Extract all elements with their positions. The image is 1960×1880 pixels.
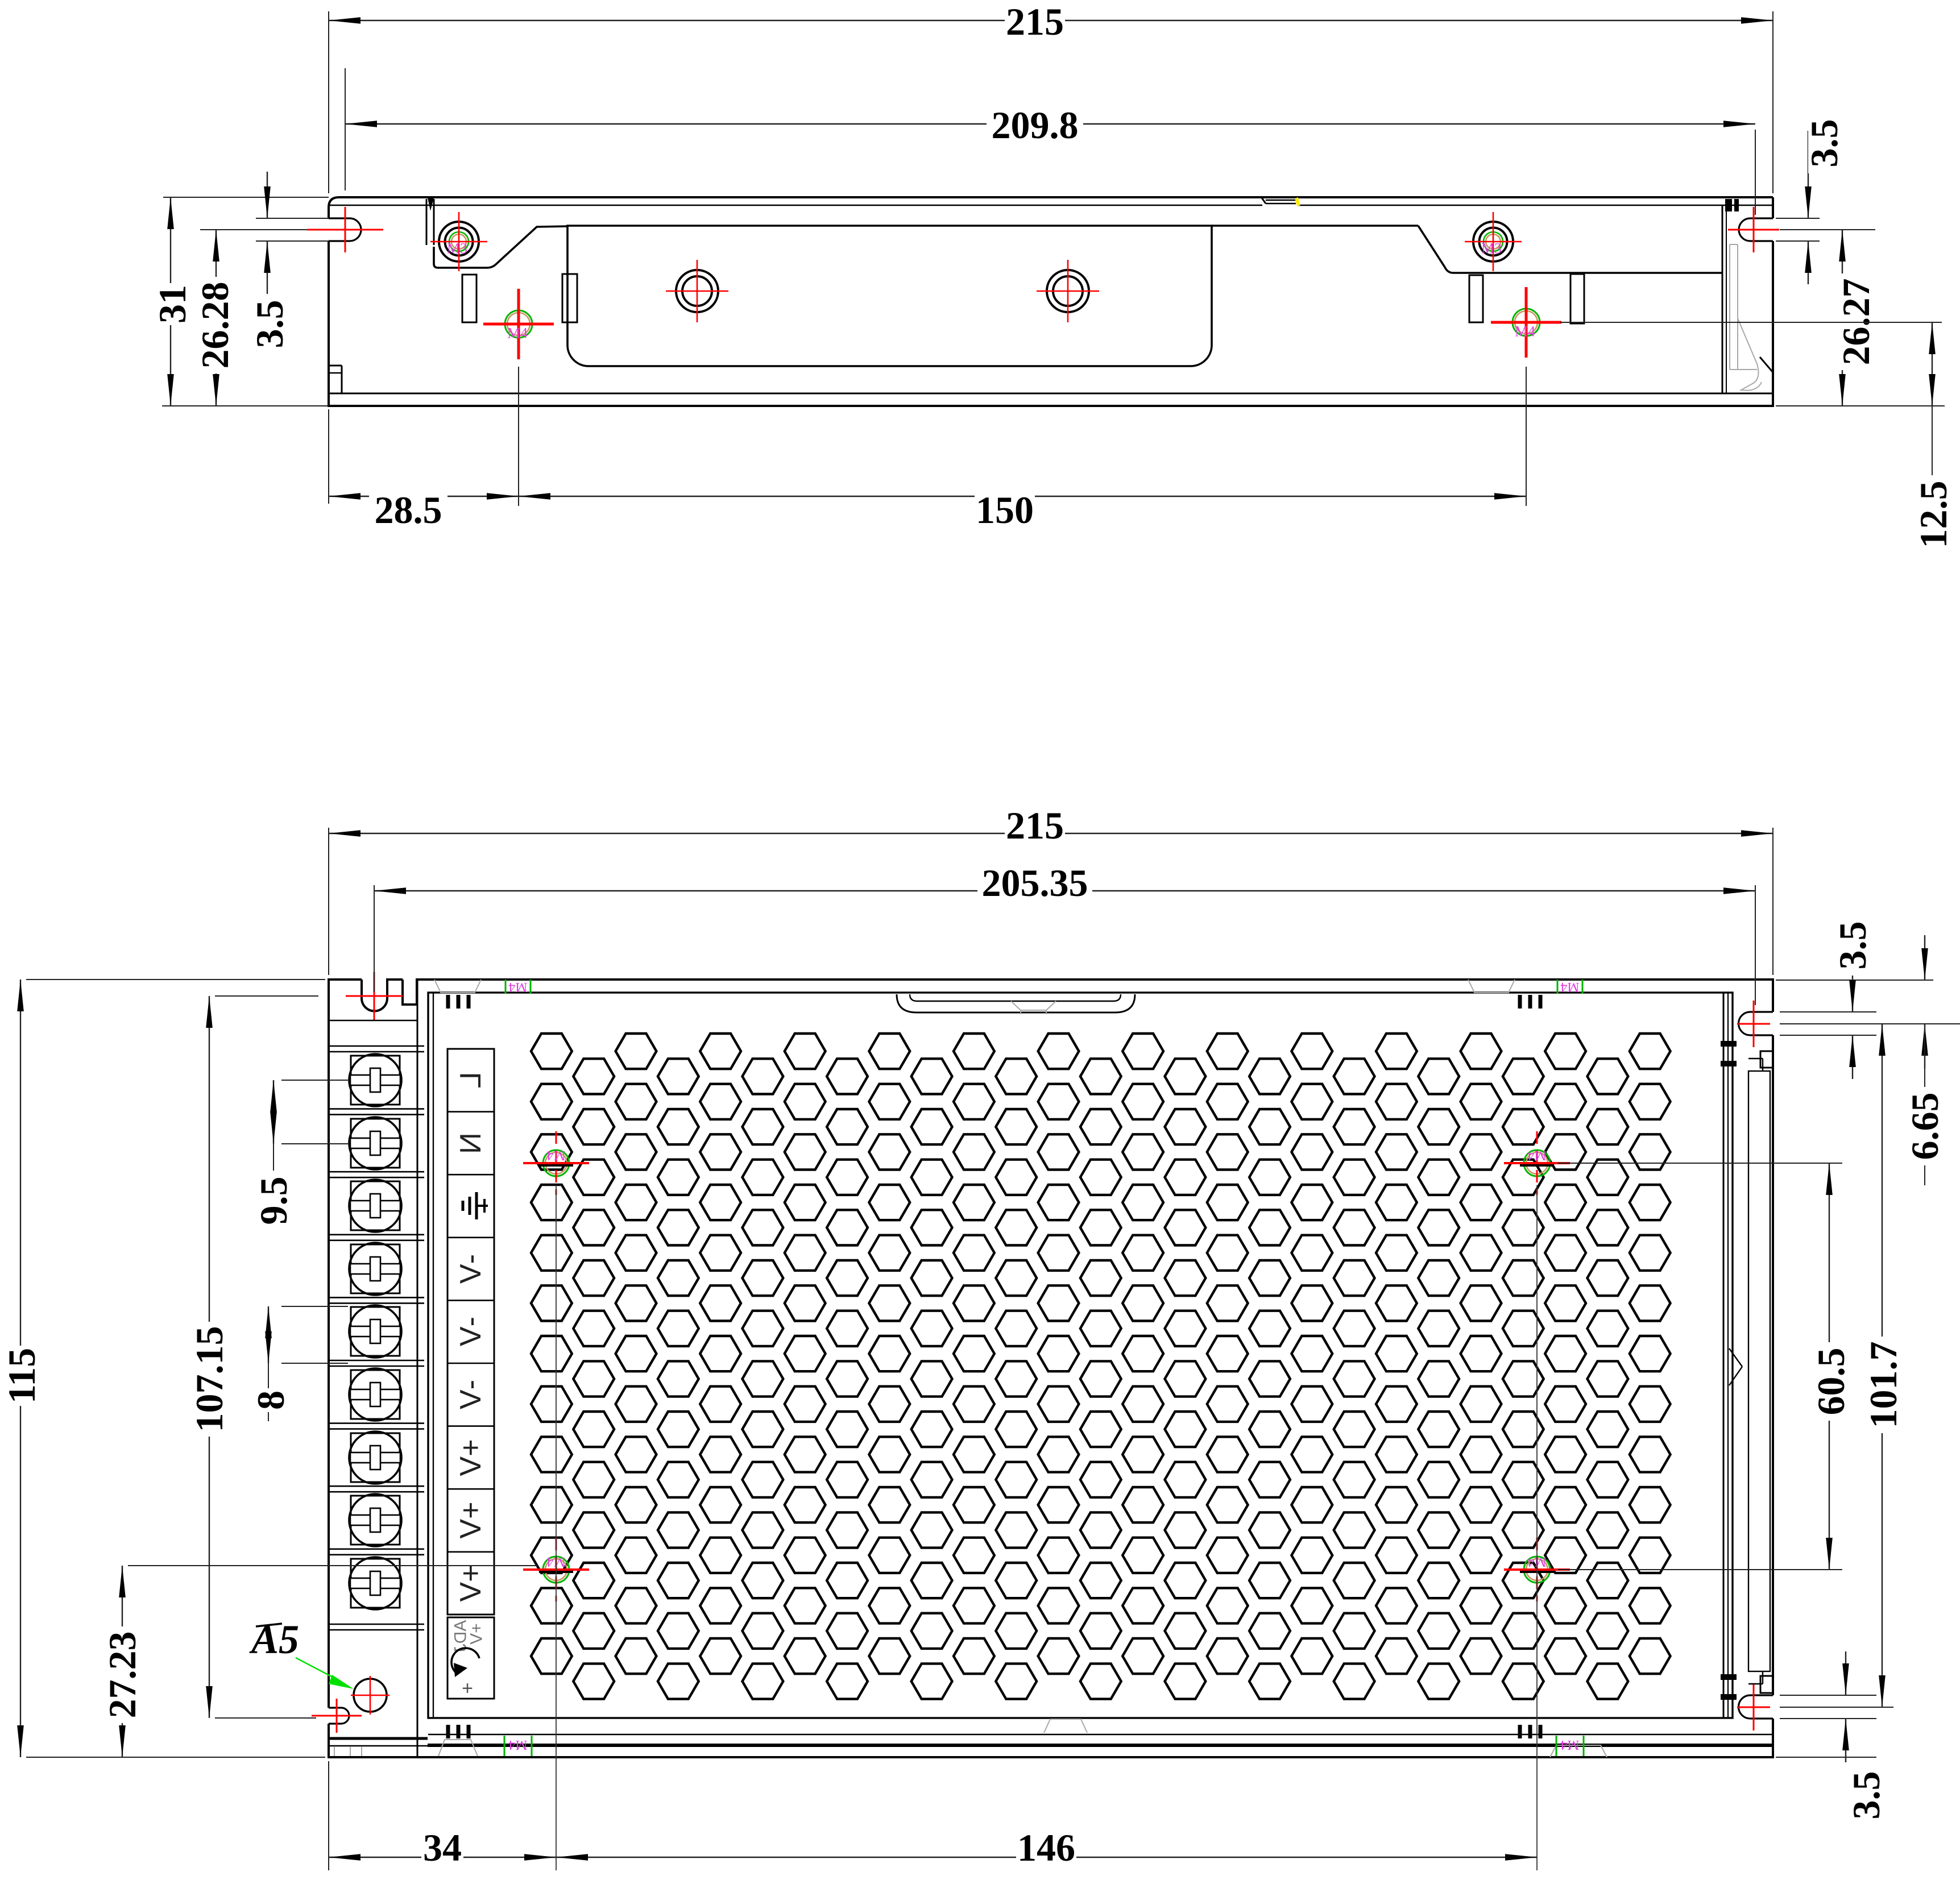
svg-text:101.7: 101.7 — [1862, 1342, 1905, 1429]
svg-text:+V: +V — [454, 1439, 487, 1476]
svg-text:27.23: 27.23 — [101, 1632, 144, 1719]
svg-text:8: 8 — [249, 1391, 292, 1410]
svg-text:3.5: 3.5 — [1831, 922, 1874, 970]
svg-text:28.5: 28.5 — [375, 488, 442, 532]
svg-text:209.8: 209.8 — [992, 103, 1079, 147]
svg-text:-V: -V — [454, 1317, 487, 1346]
svg-text:-V: -V — [454, 1254, 487, 1284]
svg-text:3.5: 3.5 — [1845, 1771, 1888, 1820]
svg-text:+V: +V — [454, 1564, 487, 1601]
svg-text:146: 146 — [1017, 1826, 1075, 1869]
svg-text:-V: -V — [454, 1380, 487, 1409]
svg-text:M4: M4 — [1560, 1737, 1579, 1752]
svg-text:M4: M4 — [1515, 323, 1535, 340]
svg-text:M4: M4 — [1527, 1148, 1546, 1163]
svg-text:6.65: 6.65 — [1903, 1093, 1946, 1160]
svg-text:+V: +V — [454, 1501, 487, 1538]
svg-text:3.5: 3.5 — [1802, 119, 1846, 168]
svg-text:M4: M4 — [1560, 980, 1579, 994]
svg-text:M3: M3 — [1481, 240, 1502, 257]
svg-text:M4: M4 — [507, 325, 528, 342]
svg-text:31: 31 — [151, 285, 194, 323]
svg-text:M3: M3 — [447, 240, 467, 257]
svg-text:34: 34 — [423, 1826, 462, 1869]
svg-text:M4: M4 — [508, 1737, 527, 1752]
svg-text:L: L — [454, 1072, 487, 1089]
svg-text:107.15: 107.15 — [188, 1326, 231, 1433]
svg-text:26.28: 26.28 — [193, 282, 237, 369]
svg-text:N: N — [454, 1132, 487, 1154]
svg-text:150: 150 — [976, 488, 1034, 532]
svg-text:60.5: 60.5 — [1809, 1348, 1853, 1416]
svg-text:215: 215 — [1006, 0, 1064, 43]
svg-text:115: 115 — [0, 1348, 43, 1404]
svg-text:9.5: 9.5 — [252, 1177, 295, 1225]
svg-text:M4: M4 — [546, 1148, 565, 1163]
svg-text:215: 215 — [1006, 804, 1064, 847]
svg-text:M4: M4 — [508, 980, 527, 994]
svg-text:205.35: 205.35 — [982, 861, 1088, 904]
svg-text:3.5: 3.5 — [248, 300, 291, 348]
svg-text:+: + — [462, 1678, 473, 1699]
svg-text:12.5: 12.5 — [1912, 481, 1955, 549]
